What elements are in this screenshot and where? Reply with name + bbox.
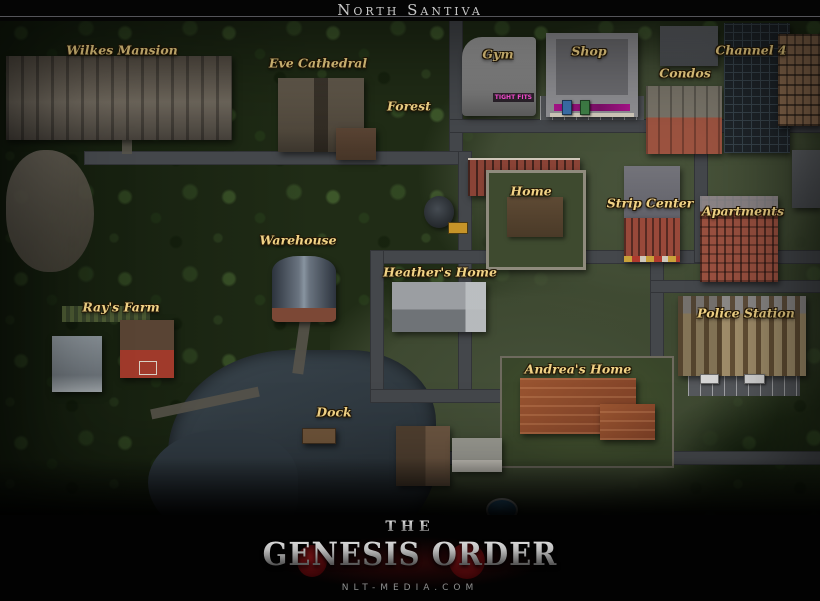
wilkes-mansion-building[interactable] xyxy=(6,56,232,140)
rays-farm-barn[interactable] xyxy=(120,320,174,378)
website-text: nlt-media.com xyxy=(0,583,820,593)
excavator-vehicle xyxy=(448,222,468,234)
map-label-apartments[interactable]: Apartments xyxy=(702,204,784,219)
map-label-heathers-home[interactable]: Heather's Home xyxy=(383,265,497,280)
road xyxy=(651,281,820,292)
game-map-screen: TIGHT FITS xyxy=(0,0,820,601)
condos-building[interactable] xyxy=(646,86,722,154)
title-bar: North Santiva xyxy=(0,0,820,21)
strip-center-awnings xyxy=(624,256,680,262)
city-block-building xyxy=(660,26,718,66)
map-label-andreas-home[interactable]: Andrea's Home xyxy=(525,362,632,377)
road xyxy=(85,152,462,164)
city-block-building xyxy=(792,150,820,208)
map-label-home[interactable]: Home xyxy=(510,184,551,199)
map-label-warehouse[interactable]: Warehouse xyxy=(259,233,336,248)
map-label-dock[interactable]: Dock xyxy=(316,405,351,420)
game-logo-title: Genesis Order xyxy=(0,536,820,573)
map-label-eve-cathedral[interactable]: Eve Cathedral xyxy=(269,56,367,71)
map-label-gym[interactable]: Gym xyxy=(482,47,513,62)
map-label-channel-4[interactable]: Channel 4 xyxy=(715,43,786,58)
andreas-home-wing xyxy=(600,404,655,440)
cottage-building xyxy=(452,438,502,472)
cliff-rocks xyxy=(6,150,94,272)
game-logo-the: The xyxy=(0,519,820,535)
road xyxy=(371,251,383,402)
title-divider xyxy=(0,16,820,17)
map-label-police-station[interactable]: Police Station xyxy=(697,306,795,321)
footer-branding: The Genesis Order nlt-media.com xyxy=(0,515,820,601)
barn-door xyxy=(139,361,157,375)
dock-pier[interactable] xyxy=(302,428,336,444)
warehouse-building[interactable] xyxy=(272,256,336,322)
home-house-roof xyxy=(507,197,563,237)
map-label-strip-center[interactable]: Strip Center xyxy=(607,196,694,211)
map-label-rays-farm[interactable]: Ray's Farm xyxy=(82,300,159,315)
map-label-wilkes-mansion[interactable]: Wilkes Mansion xyxy=(66,43,178,58)
gym-storefront-sign: TIGHT FITS xyxy=(493,93,534,102)
map-label-condos[interactable]: Condos xyxy=(659,66,711,81)
road xyxy=(450,21,462,164)
map-label-forest[interactable]: Forest xyxy=(387,99,431,114)
rays-farmhouse[interactable] xyxy=(52,336,102,392)
map-label-shop[interactable]: Shop xyxy=(571,44,606,59)
car-green xyxy=(580,100,590,115)
map-canvas[interactable]: TIGHT FITS xyxy=(0,0,820,601)
cottage-building xyxy=(396,426,450,486)
mansion-walk xyxy=(122,138,132,154)
police-car xyxy=(744,374,765,384)
strip-center-building[interactable] xyxy=(624,218,680,262)
forest-cabin xyxy=(336,128,376,160)
heathers-home-building[interactable] xyxy=(392,282,486,332)
car-blue xyxy=(562,100,572,115)
police-car xyxy=(700,374,719,384)
